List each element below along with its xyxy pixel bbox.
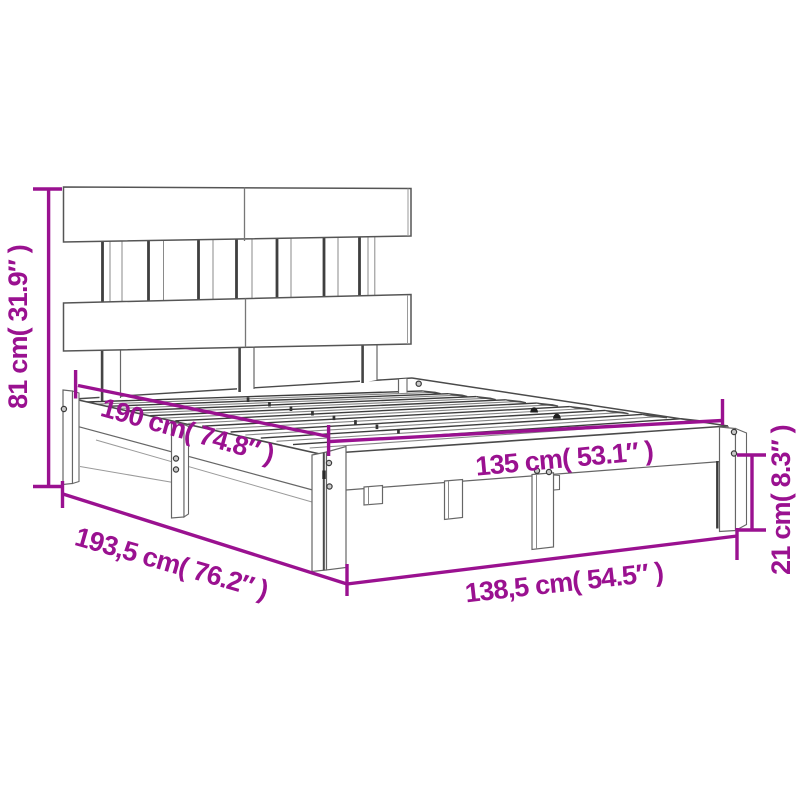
svg-text:21 cm( 8.3″ ): 21 cm( 8.3″ ) (766, 425, 796, 575)
svg-text:81 cm( 31.9″ ): 81 cm( 31.9″ ) (3, 245, 33, 409)
